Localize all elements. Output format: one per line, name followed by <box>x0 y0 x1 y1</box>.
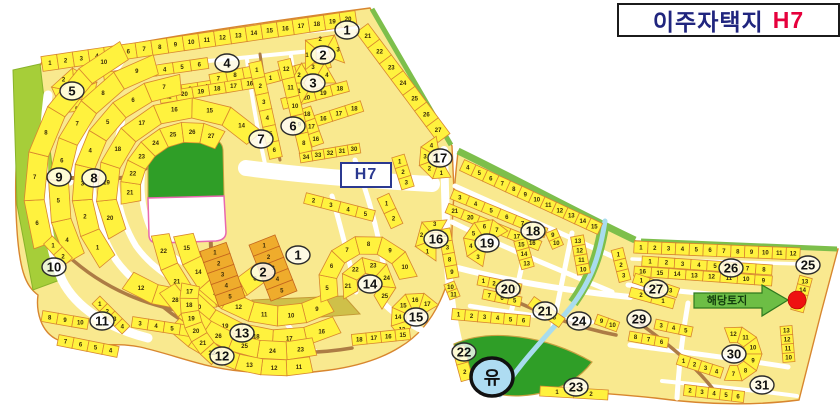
parcel-number: 24 <box>400 81 407 87</box>
parcel-number: 10 <box>553 241 560 247</box>
parcel-number: 10 <box>533 198 540 204</box>
svg-text:12: 12 <box>215 349 229 364</box>
svg-text:23: 23 <box>569 380 583 395</box>
parcel-number: 21 <box>451 209 458 215</box>
svg-text:2: 2 <box>259 265 266 280</box>
parcel-number: 13 <box>246 363 253 369</box>
parcel-number: 27 <box>208 134 215 140</box>
parcel-number: 15 <box>206 108 213 114</box>
parcel-number: 19 <box>188 317 195 323</box>
parcel-number: 10 <box>785 356 792 362</box>
kindergarten-label: 유 <box>484 368 501 388</box>
parcel-number: 11 <box>742 336 749 342</box>
parcel-number: 10 <box>580 267 587 273</box>
parcel-number: 18 <box>336 86 343 92</box>
parcel-number: 24 <box>152 141 159 147</box>
parcel-number: 20 <box>107 216 114 222</box>
parcel-number: 22 <box>130 172 137 178</box>
parcel-number: 12 <box>235 305 242 311</box>
svg-text:6: 6 <box>289 119 296 134</box>
parcel-number: 26 <box>423 112 430 118</box>
svg-text:18: 18 <box>526 224 540 239</box>
block-label: 31 <box>750 376 774 394</box>
parcel-number: 21 <box>365 34 372 40</box>
parcel-number: 18 <box>351 107 358 113</box>
parcel-number: 17 <box>335 112 342 118</box>
parcel-number: 16 <box>529 241 536 247</box>
parcel-number: 10 <box>188 40 195 46</box>
parcel-number: 21 <box>127 191 134 197</box>
parcel-number: 12 <box>730 332 737 338</box>
parcel-number: 10 <box>402 265 409 271</box>
block-label: 19 <box>475 234 499 252</box>
block-label: 8 <box>82 169 106 187</box>
parcel-number: 12 <box>283 67 290 73</box>
parcel-number: 24 <box>269 349 276 355</box>
block-label: 20 <box>496 280 520 298</box>
parcel-number: 23 <box>370 264 377 270</box>
parcel-number: 20 <box>181 92 188 98</box>
parcel-number: 17 <box>424 302 431 308</box>
svg-text:13: 13 <box>235 326 249 341</box>
svg-text:26: 26 <box>724 261 738 276</box>
parcel-number: 24 <box>383 276 390 282</box>
parcel-number: 22 <box>160 249 167 255</box>
parcel-number: 17 <box>186 290 193 296</box>
parcel-number: 32 <box>327 151 334 157</box>
parcel-number: 14 <box>674 272 681 278</box>
title-code: H7 <box>773 7 804 34</box>
svg-text:19: 19 <box>480 236 494 251</box>
block-label: 16 <box>424 230 448 248</box>
parcel-number: 14 <box>195 270 202 276</box>
parcel-number: 22 <box>376 50 383 56</box>
parcel-number: 11 <box>204 38 211 44</box>
block-label: 4 <box>215 54 239 72</box>
parcel-number: 27 <box>435 128 442 134</box>
parcel-number: 25 <box>411 97 418 103</box>
parcel-number: 12 <box>138 286 145 292</box>
svg-text:20: 20 <box>501 282 515 297</box>
screenshot-stage: 1234567891011121314151617181920212223242… <box>0 0 840 408</box>
block-label: 5 <box>60 82 84 100</box>
parcel-number: 20 <box>467 216 474 222</box>
parcel-number: 10 <box>743 277 750 283</box>
block-label: 1 <box>335 21 359 39</box>
parcel-number: 23 <box>388 65 395 71</box>
parcel-number: 13 <box>523 261 530 267</box>
block-label: 3 <box>301 74 325 92</box>
parcel-band: 13121110 <box>780 326 795 363</box>
title-text: 이주자택지 <box>653 3 764 37</box>
parcel-number: 12 <box>271 366 278 372</box>
parcel-number: 31 <box>339 149 346 155</box>
svg-text:3: 3 <box>309 76 316 91</box>
svg-text:30: 30 <box>727 347 741 362</box>
parcel-number: 13 <box>691 273 698 279</box>
parcel-number: 12 <box>556 208 563 214</box>
parcel-number: 12 <box>708 275 715 281</box>
parcel-number: 12 <box>790 252 797 258</box>
parcel-number: 26 <box>189 130 196 136</box>
parcel-number: 17 <box>513 235 520 241</box>
block-label: 1 <box>286 246 310 264</box>
svg-text:8: 8 <box>90 171 97 186</box>
parcel-number: 15 <box>399 333 406 339</box>
svg-text:25: 25 <box>801 258 815 273</box>
block-label: 22 <box>452 343 476 361</box>
svg-text:21: 21 <box>538 304 552 319</box>
parcel-number: 20 <box>193 329 200 335</box>
parcel-number: 18 <box>313 22 320 28</box>
parcel-number: 25 <box>170 132 177 138</box>
parcel-number: 13 <box>568 214 575 220</box>
svg-text:27: 27 <box>649 282 663 297</box>
parcel-number: 10 <box>288 313 295 319</box>
svg-text:1: 1 <box>343 23 350 38</box>
parcel-number: 10 <box>77 321 84 327</box>
parcel-number: 18 <box>186 303 193 309</box>
svg-text:10: 10 <box>47 260 61 275</box>
parcel-number: 13 <box>802 279 809 285</box>
svg-text:4: 4 <box>223 56 231 71</box>
parcel-number: 12 <box>784 338 791 344</box>
block-label: 7 <box>249 130 273 148</box>
parcel-number: 16 <box>385 334 392 340</box>
parcel-number: 17 <box>308 125 315 131</box>
parcel-number: 11 <box>785 347 792 353</box>
site-map: 1234567891011121314151617181920212223242… <box>0 0 840 408</box>
parcel-number: 13 <box>575 239 582 245</box>
parcel-number: 14 <box>238 124 245 130</box>
parcel-number: 13 <box>235 33 242 39</box>
svg-text:22: 22 <box>457 345 471 360</box>
parcel-number: 11 <box>545 203 552 209</box>
svg-text:7: 7 <box>257 132 264 147</box>
title-box: 이주자택지 H7 <box>617 3 840 37</box>
parcel-number: 18 <box>304 112 311 118</box>
parcel-number: 21 <box>200 341 207 347</box>
block-label: 21 <box>533 302 557 320</box>
block-label: 25 <box>796 256 820 274</box>
parcel-number: 12 <box>219 36 226 42</box>
parcel-number: 11 <box>261 313 268 319</box>
parcel-number: 11 <box>578 258 585 264</box>
parcel-number: 19 <box>329 20 336 26</box>
parcel-number: 10 <box>762 251 769 257</box>
block-label: 11 <box>90 312 114 330</box>
parcel-number: 15 <box>266 29 273 35</box>
parcel-number: 22 <box>352 268 359 274</box>
block-label: 14 <box>358 275 382 293</box>
parcel-number: 15 <box>400 303 407 309</box>
kindergarten-site: 유 <box>471 358 513 396</box>
parcel-number: 11 <box>450 292 457 298</box>
parcel-number: 17 <box>138 121 145 127</box>
parcel-number: 17 <box>298 24 305 30</box>
parcel-number: 10 <box>292 104 299 110</box>
parcel-number: 11 <box>287 86 294 92</box>
parcel-number: 18 <box>356 337 363 343</box>
block-label: 10 <box>42 258 66 276</box>
parcel-number: 26 <box>215 334 222 340</box>
block-label: 9 <box>47 168 71 186</box>
block-label: 23 <box>564 378 588 396</box>
block-label: 13 <box>230 324 254 342</box>
parcel-number: 15 <box>183 246 190 252</box>
parcel-number: 10 <box>101 60 108 66</box>
parcel-number: 14 <box>251 31 258 37</box>
parcel-number: 18 <box>114 147 121 153</box>
parcel-number: 21 <box>345 284 352 290</box>
target-parcel-dot <box>788 291 806 309</box>
svg-text:9: 9 <box>55 170 62 185</box>
block-label: 30 <box>722 345 746 363</box>
parcel-number: 13 <box>783 329 790 335</box>
parcel-number: 16 <box>282 26 289 32</box>
parcel-number: 19 <box>197 89 204 95</box>
parcel-number: 25 <box>241 344 248 350</box>
parcel-number: 17 <box>370 336 377 342</box>
parcel-number: 16 <box>318 330 325 336</box>
parcel-number: 28 <box>172 298 179 304</box>
svg-text:17: 17 <box>433 151 447 166</box>
parcel-number: 18 <box>214 87 221 93</box>
parcel-number: 23 <box>138 154 145 160</box>
parcel-number: 14 <box>579 219 586 225</box>
parcel-number: 16 <box>312 137 319 143</box>
parcel-number: 19 <box>320 91 327 97</box>
block-label: 12 <box>210 347 234 365</box>
parcel-number: 15 <box>591 224 598 230</box>
parcel-number: 15 <box>518 243 525 249</box>
parcel-number: 11 <box>296 365 303 371</box>
parcel-number: 12 <box>576 248 583 254</box>
svg-text:31: 31 <box>755 378 769 393</box>
block-label: 29 <box>627 310 651 328</box>
parcel-number: 25 <box>381 294 388 300</box>
parcel-number: 33 <box>315 153 322 159</box>
parcel-number: 30 <box>351 147 358 153</box>
parcel-number: 14 <box>395 315 402 321</box>
parcel-number: 10 <box>609 323 616 329</box>
callout-text: 해당토지 <box>707 293 747 307</box>
block-label: 17 <box>428 149 452 167</box>
parcel-number: 17 <box>230 84 237 90</box>
parcel-number: 11 <box>776 251 783 257</box>
parcel-number: 15 <box>657 271 664 277</box>
parcel-number: 10 <box>750 346 757 352</box>
svg-text:24: 24 <box>572 314 587 329</box>
parcel-number: 23 <box>297 347 304 353</box>
block-label: 18 <box>521 222 545 240</box>
block-label: 24 <box>567 312 591 330</box>
svg-text:5: 5 <box>68 84 75 99</box>
parcel-number: 16 <box>320 117 327 123</box>
svg-text:2: 2 <box>319 48 326 63</box>
parcel-number: 16 <box>171 108 178 114</box>
svg-text:11: 11 <box>95 314 109 329</box>
svg-text:1: 1 <box>294 248 301 263</box>
svg-text:14: 14 <box>363 277 378 292</box>
parcel-number: 34 <box>303 155 310 161</box>
block-label: 27 <box>644 280 668 298</box>
parcel-number: 14 <box>521 252 528 258</box>
parcel-number: 16 <box>412 298 419 304</box>
district-label-h7: H7 <box>340 162 392 188</box>
block-label: 2 <box>311 46 335 64</box>
block-label: 26 <box>719 259 743 277</box>
svg-text:29: 29 <box>632 312 646 327</box>
svg-text:15: 15 <box>409 310 423 325</box>
block-label: 2 <box>251 263 275 281</box>
block-label: 15 <box>404 308 428 326</box>
block-label: 6 <box>281 117 305 135</box>
svg-text:16: 16 <box>429 232 443 247</box>
